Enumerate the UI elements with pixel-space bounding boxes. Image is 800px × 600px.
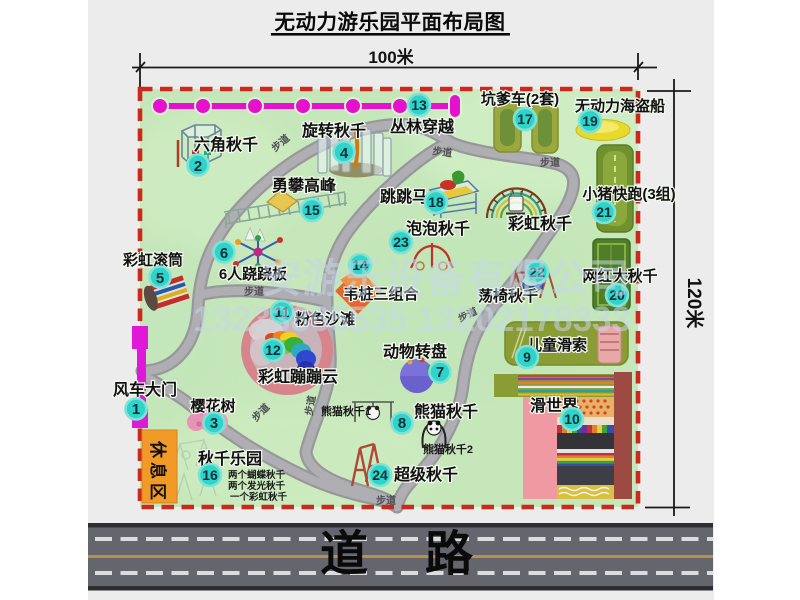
- svg-text:2: 2: [194, 158, 202, 175]
- svg-text:彩虹滚筒: 彩虹滚筒: [122, 251, 183, 269]
- svg-text:无动力游乐园平面布局图: 无动力游乐园平面布局图: [275, 10, 506, 34]
- svg-text:9: 9: [523, 349, 531, 365]
- svg-text:熊猫秋千2: 熊猫秋千2: [423, 442, 473, 456]
- svg-text:丛林穿越: 丛林穿越: [390, 117, 455, 136]
- svg-text:17: 17: [517, 111, 533, 127]
- svg-text:小猪快跑(3组): 小猪快跑(3组): [582, 185, 675, 203]
- svg-text:彩虹蹦蹦云: 彩虹蹦蹦云: [257, 367, 338, 386]
- svg-text:7: 7: [436, 364, 444, 381]
- svg-text:跳跳马: 跳跳马: [380, 187, 428, 206]
- svg-text:安游乐设备有限公司: 安游乐设备有限公司: [262, 257, 631, 301]
- svg-text:4: 4: [340, 145, 349, 162]
- svg-text:120米: 120米: [683, 278, 706, 330]
- svg-text:熊猫秋千1: 熊猫秋千1: [321, 404, 371, 418]
- svg-text:一个彩虹秋千: 一个彩虹秋千: [230, 491, 288, 503]
- svg-text:13233865535 13202178333: 13233865535 13202178333: [193, 300, 631, 339]
- svg-text:彩虹秋千: 彩虹秋千: [507, 214, 572, 233]
- svg-text:泡泡秋千: 泡泡秋千: [406, 219, 470, 238]
- svg-text:24: 24: [372, 467, 388, 483]
- svg-text:休息区: 休息区: [148, 440, 168, 504]
- svg-text:19: 19: [582, 113, 598, 129]
- svg-text:步道: 步道: [540, 156, 560, 169]
- svg-text:动物转盘: 动物转盘: [383, 342, 447, 361]
- svg-text:12: 12: [265, 342, 281, 358]
- svg-text:六角秋千: 六角秋千: [194, 135, 258, 154]
- svg-text:15: 15: [304, 202, 320, 218]
- svg-text:道: 道: [320, 528, 368, 581]
- svg-text:21: 21: [596, 204, 612, 220]
- svg-text:1: 1: [132, 401, 140, 418]
- svg-text:8: 8: [398, 415, 406, 432]
- svg-text:勇攀高峰: 勇攀高峰: [272, 176, 337, 195]
- svg-text:两个蝴蝶秋千: 两个蝴蝶秋千: [228, 469, 286, 481]
- svg-text:坑爹车(2套): 坑爹车(2套): [481, 90, 559, 108]
- svg-text:100米: 100米: [368, 47, 414, 67]
- svg-text:超级秋千: 超级秋千: [393, 465, 458, 484]
- svg-text:6: 6: [220, 245, 228, 262]
- svg-text:23: 23: [393, 234, 409, 250]
- svg-text:风车大门: 风车大门: [113, 380, 177, 399]
- svg-text:13: 13: [411, 97, 427, 113]
- svg-text:3: 3: [210, 415, 218, 432]
- svg-text:10: 10: [564, 411, 580, 427]
- svg-text:旋转秋千: 旋转秋千: [301, 121, 366, 140]
- svg-text:路: 路: [425, 528, 474, 581]
- svg-text:16: 16: [202, 467, 218, 483]
- svg-text:两个发光秋千: 两个发光秋千: [228, 480, 286, 492]
- svg-text:5: 5: [156, 270, 164, 287]
- svg-text:18: 18: [428, 194, 444, 210]
- svg-text:熊猫秋千: 熊猫秋千: [414, 402, 478, 421]
